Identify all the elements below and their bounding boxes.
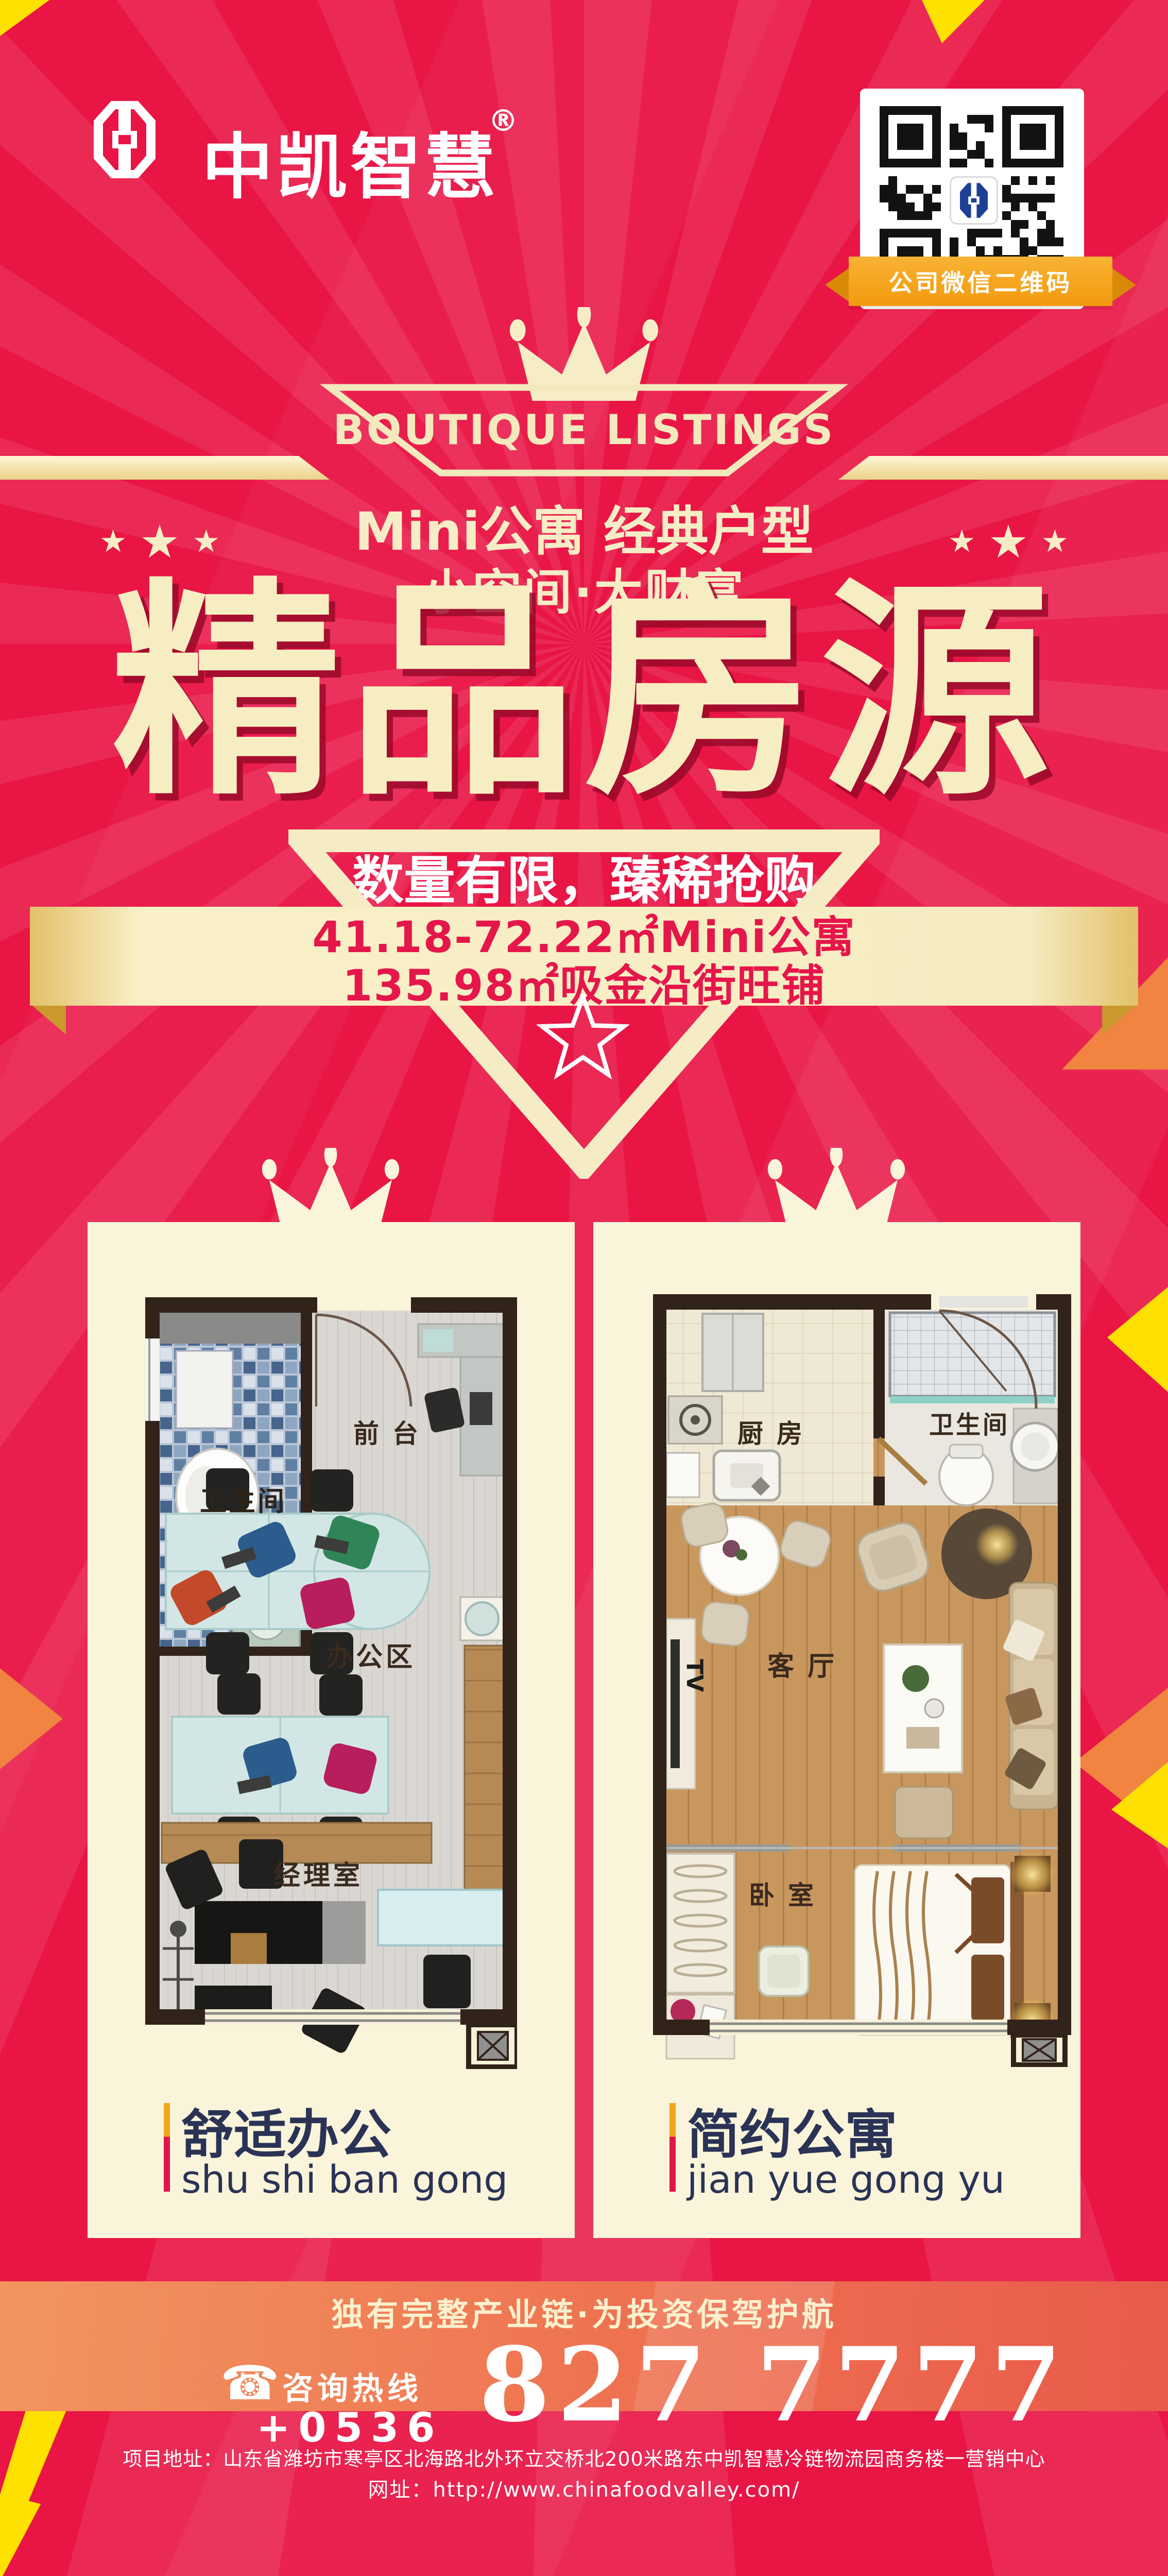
website-url: 网址：http://www.chinafoodvalley.com/ bbox=[0, 2473, 1168, 2503]
card-apartment-pinyin: jian yue gong yu bbox=[687, 2158, 1005, 2202]
registered-trademark: ® bbox=[488, 103, 518, 138]
star-outline-icon bbox=[537, 993, 629, 1086]
hotline-number: 827 7777 bbox=[479, 2325, 1069, 2445]
offer-line1: 41.18-72.22㎡Mini公寓 bbox=[0, 913, 1168, 961]
room-label-kitchen: 厨房 bbox=[737, 1419, 816, 1449]
room-label-manager: 经理室 bbox=[273, 1860, 363, 1891]
caption-accent-bar bbox=[669, 2103, 676, 2192]
hotline-label: 咨询热线 bbox=[282, 2364, 422, 2409]
banner-trapezoid: BOUTIQUE LISTINGS bbox=[309, 381, 859, 480]
banner-side-bar-right bbox=[838, 456, 1168, 480]
caption-accent-bar bbox=[164, 2103, 170, 2192]
phone-icon: ☎ bbox=[220, 2355, 280, 2411]
room-label-bathroom: 卫生间 bbox=[200, 1486, 286, 1517]
room-label-bedroom: 卧室 bbox=[749, 1880, 827, 1910]
room-label-tv: TV bbox=[681, 1659, 708, 1692]
room-label-bathroom: 卫生间 bbox=[929, 1411, 1009, 1439]
company-name: 中凯智慧 bbox=[202, 109, 499, 212]
room-label-front-desk: 前台 bbox=[353, 1419, 432, 1449]
poster-root: 中凯智慧 ® 公司微信二维码 BOUTIQUE LISTINGS ★ ★ bbox=[0, 0, 1168, 2576]
room-label-office: 办公区 bbox=[326, 1642, 416, 1673]
floorplan-apartment: 厨房 卫生间 客厅 卧室 TV bbox=[653, 1263, 1071, 2067]
company-logo-icon bbox=[93, 101, 157, 178]
card-apartment-title: 简约公寓 bbox=[687, 2093, 897, 2168]
main-title: 精品房源 bbox=[0, 578, 1168, 807]
qr-caption-label: 公司微信二维码 bbox=[889, 264, 1073, 298]
qr-caption-ribbon: 公司微信二维码 bbox=[849, 257, 1112, 306]
card-office-title: 舒适办公 bbox=[181, 2093, 391, 2168]
banner-side-bar-left bbox=[0, 456, 330, 480]
card-office-pinyin: shu shi ban gong bbox=[181, 2158, 508, 2202]
qr-center-logo bbox=[950, 176, 998, 225]
banner-title: BOUTIQUE LISTINGS bbox=[333, 406, 835, 454]
room-label-living: 客厅 bbox=[767, 1651, 848, 1682]
floorplan-office: 卫生间 前台 办公区 经理室 bbox=[145, 1263, 517, 2069]
project-address: 项目地址：山东省潍坊市寒亭区北海路北外环立交桥北200米路东中凯智慧冷链物流园商… bbox=[0, 2443, 1168, 2471]
